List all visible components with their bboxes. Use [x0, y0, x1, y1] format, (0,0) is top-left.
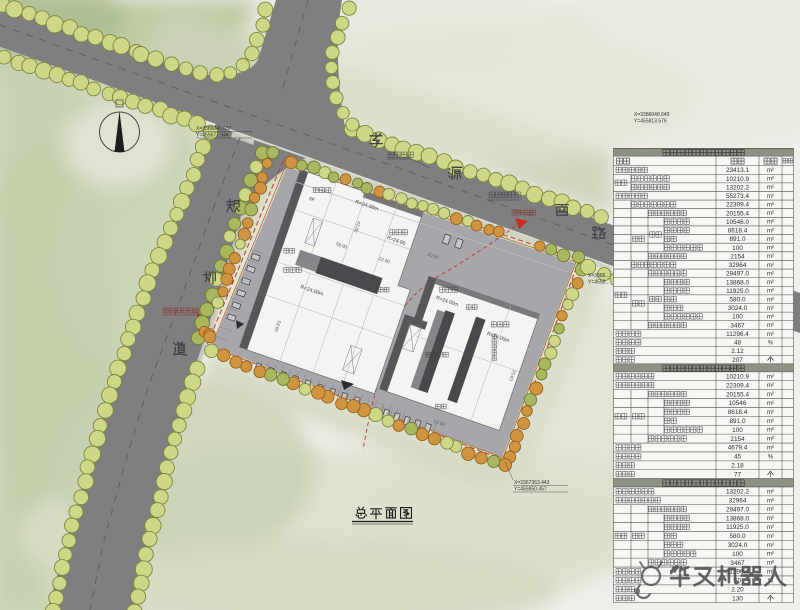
svg-text:m²: m² [767, 392, 774, 398]
svg-text:20155.4: 20155.4 [726, 391, 750, 398]
svg-text:2.12: 2.12 [731, 348, 744, 355]
svg-text:100: 100 [732, 314, 743, 321]
svg-text:m²: m² [767, 543, 774, 549]
svg-text:X=3386...: X=3386... [588, 273, 610, 279]
svg-text:m²: m² [767, 271, 774, 277]
svg-text:55273.4: 55273.4 [726, 193, 750, 200]
svg-text:m²: m² [767, 552, 774, 558]
svg-text:22309.4: 22309.4 [726, 202, 750, 209]
svg-text:10210.9: 10210.9 [726, 374, 750, 381]
svg-text:m²: m² [767, 507, 774, 513]
svg-text:11296.4: 11296.4 [726, 331, 749, 338]
svg-text:Y=455813.576: Y=455813.576 [634, 119, 667, 125]
svg-text:m²: m² [767, 228, 774, 234]
svg-text:X=3367363.443: X=3367363.443 [514, 480, 550, 486]
svg-text:m²: m² [767, 263, 774, 269]
svg-text:m²: m² [767, 383, 774, 389]
svg-text:3467: 3467 [730, 322, 745, 329]
svg-text:Y=455677.344: Y=455677.344 [196, 133, 229, 139]
svg-text:m²: m² [767, 246, 774, 252]
svg-text:2154: 2154 [730, 436, 745, 443]
svg-text:m²: m² [767, 534, 774, 540]
svg-text:m²: m² [767, 437, 774, 443]
svg-text:%: % [768, 340, 774, 346]
svg-text:29497.0: 29497.0 [726, 271, 750, 278]
svg-text:m²: m² [767, 525, 774, 531]
svg-text:m²: m² [767, 203, 774, 209]
svg-text:m²: m² [767, 254, 774, 260]
svg-text:891.0: 891.0 [730, 236, 746, 243]
svg-text:10546.0: 10546.0 [726, 219, 750, 226]
svg-text:m²: m² [767, 220, 774, 226]
svg-text:2.18: 2.18 [731, 463, 744, 470]
svg-text:13868.0: 13868.0 [726, 279, 750, 286]
svg-text:8618.4: 8618.4 [728, 228, 748, 235]
svg-text:77: 77 [734, 471, 742, 478]
svg-text:m²: m² [767, 401, 774, 407]
svg-text:10546: 10546 [729, 400, 747, 407]
svg-text:m²: m² [767, 297, 774, 303]
svg-text:207: 207 [732, 357, 743, 364]
svg-text:13868.0: 13868.0 [726, 515, 750, 522]
svg-text:13202.2: 13202.2 [726, 489, 750, 496]
svg-text:m²: m² [767, 315, 774, 321]
svg-text:m²: m² [767, 374, 774, 380]
svg-text:32964: 32964 [729, 498, 747, 505]
svg-text:580.0: 580.0 [730, 297, 746, 304]
svg-text:m²: m² [767, 516, 774, 522]
svg-text:3467: 3467 [730, 560, 745, 567]
svg-text:100: 100 [732, 551, 743, 558]
svg-text:3024.0: 3024.0 [728, 542, 748, 549]
svg-text:8618.4: 8618.4 [728, 409, 748, 416]
svg-text:m²: m² [767, 419, 774, 425]
svg-text:m²: m² [767, 168, 774, 174]
svg-text:m²: m² [767, 489, 774, 495]
svg-text:m²: m² [767, 211, 774, 217]
svg-text:m²: m² [767, 410, 774, 416]
svg-text:580.0: 580.0 [730, 533, 746, 540]
svg-text:45: 45 [734, 454, 742, 461]
svg-text:23413.1: 23413.1 [726, 167, 750, 174]
svg-text:3024.0: 3024.0 [728, 305, 748, 312]
svg-text:4679.4: 4679.4 [728, 445, 748, 452]
svg-text:m²: m² [767, 306, 774, 312]
svg-text:11925.0: 11925.0 [726, 524, 749, 531]
svg-text:m²: m² [767, 289, 774, 295]
svg-text:100: 100 [732, 245, 743, 252]
svg-text:m²: m² [767, 498, 774, 504]
svg-text:10210.9: 10210.9 [726, 176, 750, 183]
svg-text:%: % [768, 454, 774, 460]
svg-text:m²: m² [767, 332, 774, 338]
svg-text:m²: m² [767, 237, 774, 243]
svg-text:2.20: 2.20 [731, 587, 744, 594]
svg-text:11925.0: 11925.0 [726, 288, 749, 295]
svg-text:m²: m² [767, 185, 774, 191]
svg-text:22309.4: 22309.4 [726, 382, 750, 389]
svg-text:m²: m² [767, 280, 774, 286]
svg-text:20155.4: 20155.4 [726, 210, 750, 217]
svg-text:X=3386040.637: X=3386040.637 [196, 126, 232, 132]
svg-text:48: 48 [734, 340, 742, 347]
svg-text:m²: m² [767, 323, 774, 329]
svg-text:2154: 2154 [730, 253, 745, 260]
svg-text:100: 100 [732, 427, 743, 434]
svg-text:m²: m² [767, 194, 774, 200]
svg-text:X=3386048.649: X=3386048.649 [634, 112, 670, 118]
svg-text:32964: 32964 [729, 262, 747, 269]
svg-text:130: 130 [732, 595, 743, 602]
svg-text:m²: m² [767, 561, 774, 567]
svg-text:Y=455950.457: Y=455950.457 [514, 487, 547, 493]
svg-text:13202.2: 13202.2 [726, 184, 750, 191]
svg-text:891.0: 891.0 [730, 418, 746, 425]
svg-text:m²: m² [767, 428, 774, 434]
svg-text:m²: m² [767, 177, 774, 183]
svg-text:m²: m² [767, 446, 774, 452]
svg-text:29497.0: 29497.0 [726, 506, 750, 513]
svg-text:Y=4558...: Y=4558... [588, 280, 610, 286]
